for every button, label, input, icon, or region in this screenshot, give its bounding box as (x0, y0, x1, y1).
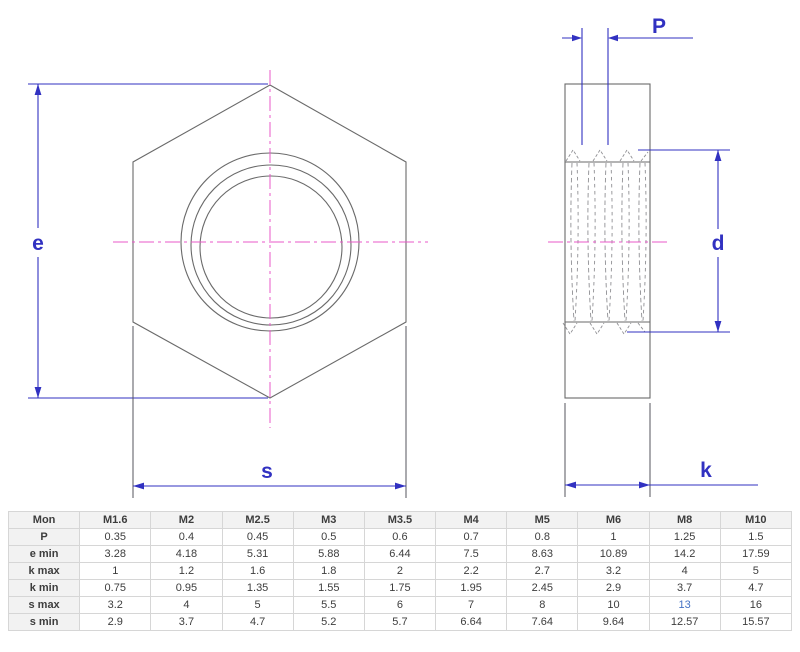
s-label: s (261, 460, 273, 483)
row-label: e min (9, 546, 80, 563)
value-cell: 5.31 (222, 546, 293, 563)
value-cell: 14.2 (649, 546, 720, 563)
value-cell: 0.7 (436, 529, 507, 546)
value-cell: 3.7 (151, 614, 222, 631)
value-cell: 17.59 (720, 546, 791, 563)
dimension-e: e (28, 84, 268, 398)
value-cell: 7.64 (507, 614, 578, 631)
column-header: M4 (436, 512, 507, 529)
value-cell: 12.57 (649, 614, 720, 631)
value-cell: 5 (720, 563, 791, 580)
value-cell: 5.7 (364, 614, 435, 631)
row-label: s max (9, 597, 80, 614)
row-label: s min (9, 614, 80, 631)
arrow-right-icon (572, 35, 582, 41)
value-cell: 0.35 (80, 529, 151, 546)
table-row: s max3.2455.5678101316 (9, 597, 792, 614)
value-cell: 0.8 (507, 529, 578, 546)
e-label: e (32, 232, 44, 255)
column-header: M3.5 (364, 512, 435, 529)
p-label: P (652, 15, 666, 38)
value-cell: 0.6 (364, 529, 435, 546)
column-header: M10 (720, 512, 791, 529)
column-header: M2.5 (222, 512, 293, 529)
value-cell: 0.95 (151, 580, 222, 597)
value-cell: 5.5 (293, 597, 364, 614)
dimensions-table: MonM1.6M2M2.5M3M3.5M4M5M6M8M10P0.350.40.… (8, 511, 792, 631)
value-cell: 4.7 (720, 580, 791, 597)
thread-major-circle (191, 165, 351, 325)
table-row: e min3.284.185.315.886.447.58.6310.8914.… (9, 546, 792, 563)
dimension-p: P (562, 15, 693, 145)
value-cell: 4.18 (151, 546, 222, 563)
value-cell: 1.35 (222, 580, 293, 597)
value-cell: 5 (222, 597, 293, 614)
value-cell: 1 (80, 563, 151, 580)
technical-drawing: e s (0, 0, 800, 510)
arrow-left-icon (133, 483, 144, 490)
side-view: P d k (548, 15, 758, 497)
arrow-right-icon (639, 482, 650, 489)
value-cell: 1 (578, 529, 649, 546)
dimension-d: d (627, 150, 730, 332)
value-cell: 2.7 (507, 563, 578, 580)
value-cell: 3.28 (80, 546, 151, 563)
value-cell: 1.2 (151, 563, 222, 580)
value-cell: 1.5 (720, 529, 791, 546)
value-cell: 5.2 (293, 614, 364, 631)
value-cell: 8.63 (507, 546, 578, 563)
table-row: P0.350.40.450.50.60.70.811.251.5 (9, 529, 792, 546)
value-cell: 6.44 (364, 546, 435, 563)
d-label: d (712, 232, 725, 255)
arrow-down-icon (715, 321, 722, 332)
value-cell: 5.88 (293, 546, 364, 563)
column-header: Mon (9, 512, 80, 529)
table-row: s min2.93.74.75.25.76.647.649.6412.5715.… (9, 614, 792, 631)
value-cell: 3.2 (80, 597, 151, 614)
value-cell: 1.75 (364, 580, 435, 597)
row-label: k max (9, 563, 80, 580)
value-cell: 13 (649, 597, 720, 614)
table-row: k min0.750.951.351.551.751.952.452.93.74… (9, 580, 792, 597)
value-cell: 1.6 (222, 563, 293, 580)
value-cell: 16 (720, 597, 791, 614)
value-cell: 4 (151, 597, 222, 614)
column-header: M8 (649, 512, 720, 529)
hex-nut-spec-sheet: e s (0, 0, 800, 652)
thread-minor-circle (200, 176, 342, 318)
arrow-up-icon (715, 150, 722, 161)
value-cell: 2 (364, 563, 435, 580)
arrow-left-icon (608, 35, 618, 41)
value-cell: 8 (507, 597, 578, 614)
arrow-down-icon (35, 387, 42, 398)
value-cell: 6 (364, 597, 435, 614)
value-cell: 10 (578, 597, 649, 614)
value-cell: 6.64 (436, 614, 507, 631)
column-header: M5 (507, 512, 578, 529)
value-cell: 0.4 (151, 529, 222, 546)
value-cell: 0.75 (80, 580, 151, 597)
value-cell: 1.8 (293, 563, 364, 580)
arrow-right-icon (395, 483, 406, 490)
value-cell: 0.5 (293, 529, 364, 546)
value-cell: 4 (649, 563, 720, 580)
value-cell: 1.55 (293, 580, 364, 597)
column-header: M3 (293, 512, 364, 529)
value-cell: 15.57 (720, 614, 791, 631)
value-cell: 3.2 (578, 563, 649, 580)
column-header: M6 (578, 512, 649, 529)
row-label: P (9, 529, 80, 546)
value-cell: 3.7 (649, 580, 720, 597)
value-cell: 10.89 (578, 546, 649, 563)
row-label: k min (9, 580, 80, 597)
value-cell: 9.64 (578, 614, 649, 631)
column-header: M2 (151, 512, 222, 529)
value-cell: 2.45 (507, 580, 578, 597)
arrow-up-icon (35, 84, 42, 95)
value-cell: 1.25 (649, 529, 720, 546)
dimension-k: k (565, 403, 758, 497)
value-cell: 2.2 (436, 563, 507, 580)
arrow-left-icon (565, 482, 576, 489)
k-label: k (700, 459, 712, 482)
value-cell: 2.9 (80, 614, 151, 631)
front-view: e s (28, 70, 428, 498)
value-cell: 4.7 (222, 614, 293, 631)
header-row: MonM1.6M2M2.5M3M3.5M4M5M6M8M10 (9, 512, 792, 529)
value-cell: 2.9 (578, 580, 649, 597)
dimensions-table-container: MonM1.6M2M2.5M3M3.5M4M5M6M8M10P0.350.40.… (8, 511, 792, 631)
table-row: k max11.21.61.822.22.73.245 (9, 563, 792, 580)
value-cell: 7.5 (436, 546, 507, 563)
value-cell: 7 (436, 597, 507, 614)
column-header: M1.6 (80, 512, 151, 529)
value-cell: 0.45 (222, 529, 293, 546)
value-cell: 1.95 (436, 580, 507, 597)
